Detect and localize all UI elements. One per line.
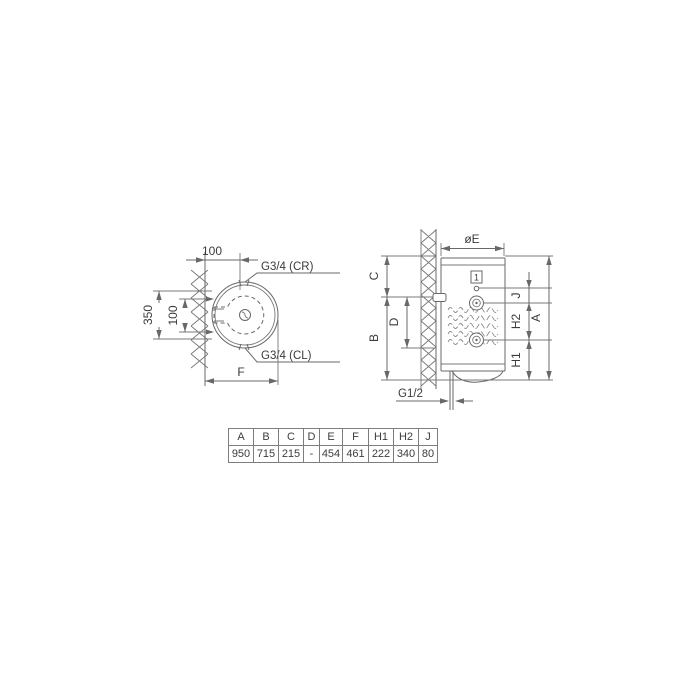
table-value-cell: 80 [419,446,438,463]
dim-a: A [529,256,552,380]
bottom-pipe [450,371,453,410]
callout-1-text: 1 [474,273,479,283]
dim-100-left: 100 [166,297,214,335]
dim-a-text: A [529,314,543,322]
dim-b-text: B [367,334,381,342]
coil-connection-upper [470,296,484,310]
table-header-cell: B [254,429,279,446]
table-value-cell: - [304,446,320,463]
table-header-cell: F [343,429,369,446]
label-cr: G3/4 (CR) [261,261,314,273]
tank-dome [452,371,503,382]
label-cl: G3/4 (CL) [261,350,312,362]
spec-table: A B C D E F H1 H2 J 950 715 215 - 454 46… [228,428,438,463]
table-header-row: A B C D E F H1 H2 J [229,429,438,446]
table-header-cell: H1 [369,429,394,446]
table-value-row: 950 715 215 - 454 461 222 340 80 [229,446,438,463]
dim-j-text: J [509,293,523,299]
callout-cr: G3/4 (CR) [245,261,340,282]
dim-h2-text: H2 [509,314,523,330]
dim-h1-text: H1 [509,352,523,368]
dim-b: B [367,297,390,380]
table-header-cell: J [419,429,438,446]
table-header-cell: H2 [394,429,419,446]
table-value-cell: 715 [254,446,279,463]
dim-f-text: F [237,365,244,379]
callout-cl: G3/4 (CL) [245,348,340,362]
leader-cr [245,273,340,282]
mounting-bracket [433,294,446,302]
dim-g12: G1/2 [396,388,473,404]
dim-100-top-text: 100 [202,244,222,258]
table-value-cell: 222 [369,446,394,463]
label-g12: G1/2 [398,388,423,400]
dim-c: C [367,256,390,297]
table-header-cell: E [320,429,343,446]
thermostat-screw-icon [474,286,479,291]
right-view: 1 øE [367,229,553,410]
dim-100-top: 100 [186,244,258,290]
dim-d: D [387,297,434,348]
dim-c-text: C [367,271,381,280]
table-header-cell: A [229,429,254,446]
left-view: G3/4 (CR) G3/4 (CL) 100 350 [141,244,340,386]
wall-hatch-right [421,230,436,386]
table-value-cell: 461 [343,446,369,463]
dim-100-left-text: 100 [166,305,180,325]
table-header-cell: D [304,429,320,446]
dim-oe: øE [441,232,504,256]
keyhole-dashed [214,296,264,334]
dim-h1: H1 [509,340,532,380]
table-header-cell: C [279,429,304,446]
table-value-cell: 340 [394,446,419,463]
dim-350-text: 350 [141,305,155,325]
drawing-svg: G3/4 (CR) G3/4 (CL) 100 350 [0,0,700,700]
table-value-cell: 950 [229,446,254,463]
coil-connection-lower [470,333,484,347]
technical-drawing-page: G3/4 (CR) G3/4 (CL) 100 350 [0,0,700,700]
table-value-cell: 454 [320,446,343,463]
dim-d-text: D [387,317,401,326]
dim-oe-text: øE [464,232,479,246]
table-value-cell: 215 [279,446,304,463]
